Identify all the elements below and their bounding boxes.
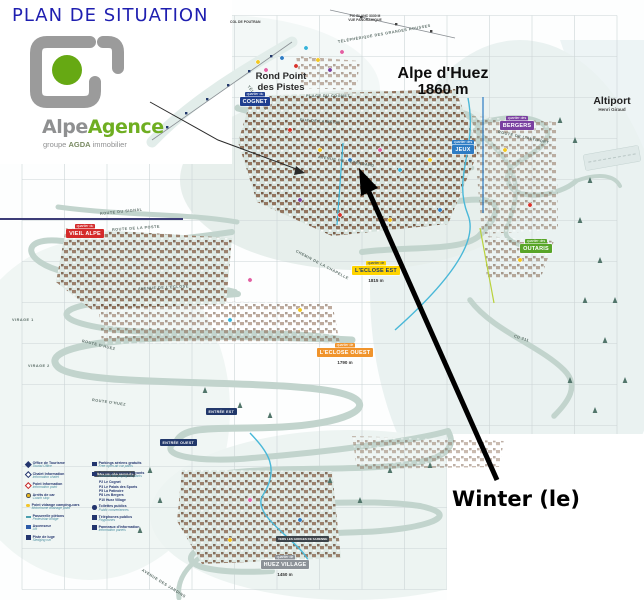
quartier-badge-eclose-ouest: quartier de L'ECLOSE OUEST 1790 m xyxy=(314,343,376,365)
quartier-badge-outaris: quartier des OUTARIS xyxy=(512,239,560,253)
tagline-pre: groupe xyxy=(43,140,66,149)
resort-name: Alpe d'Huez xyxy=(384,66,502,82)
legend-item: Ascenseur Lift xyxy=(26,524,88,532)
quartier-badge-vieil-alpe: quartier du VIEIL ALPE xyxy=(62,224,108,238)
badge-label: L'ECLOSE EST xyxy=(352,266,400,275)
altiport-label: Altiport Henri Giraud xyxy=(582,96,642,112)
wordmark-agence: Agence xyxy=(88,116,164,138)
parking-entry: P10 Huez Village xyxy=(99,499,172,503)
legend-text: Piste de luge Sledging run xyxy=(33,535,55,543)
agency-logo-mark xyxy=(20,30,180,120)
legend-text: Point vidange camping-cars Motorhome dra… xyxy=(32,503,80,511)
badge-tab: quartier des xyxy=(452,140,474,145)
resort-altitude: 1860 m xyxy=(384,82,502,99)
legend-item: Passerelle piétons Pedestrian bridge xyxy=(26,514,88,522)
quartier-badge-bergers: quartier des BERGERS xyxy=(494,116,540,130)
quartier-badge-jeux: quartier des JEUX xyxy=(442,140,484,154)
legend-icon xyxy=(26,493,31,498)
legend-item: Piste de luge Sledging run xyxy=(26,535,88,543)
entrance-badge-ouest: ENTRÉE OUEST xyxy=(160,439,197,446)
pic-blanc-line2: VUE PANORAMIQUE xyxy=(330,18,400,22)
badge-label: HUEZ VILLAGE xyxy=(261,560,310,569)
info-panel-icon xyxy=(92,525,97,530)
legend-label-en: Covered fee-paying car parks xyxy=(99,475,145,479)
legend-label-en: Free open-air car parks xyxy=(99,465,142,469)
legend-text: Chalet Information Information chalet xyxy=(33,472,65,480)
badge-tab: quartier de xyxy=(335,343,356,348)
legend-icon xyxy=(25,471,31,477)
legend-label-en: Public conveniences xyxy=(99,509,129,513)
entrance-badge-est: ENTRÉE EST xyxy=(206,408,237,415)
legend-item: Arrêts de car Coach stop xyxy=(26,493,88,501)
covered-parking-icon xyxy=(92,472,97,477)
legend-item: Toilettes publicsPublic conveniences xyxy=(92,504,172,512)
badge-tab: quartier du xyxy=(245,92,266,97)
badge-label: L'ECLOSE OUEST xyxy=(317,348,374,357)
legend-label-en: Information panels xyxy=(99,529,140,533)
altiport-sub: Henri Giraud xyxy=(582,107,642,112)
street-label: VIRAGE 1 xyxy=(12,318,34,322)
legend-icon xyxy=(25,482,31,488)
payphone-icon xyxy=(92,515,97,520)
pic-blanc-label: PIC BLANC 3330 M VUE PANORAMIQUE xyxy=(330,14,400,23)
badge-label: VIEIL ALPE xyxy=(66,229,104,238)
legend-text: Arrêts de car Coach stop xyxy=(33,493,55,501)
badge-label: BERGERS xyxy=(500,121,535,130)
quartier-badge-cognet: quartier du COGNET xyxy=(236,92,274,106)
legend-right-column: Parkings aériens gratuitsFree open-air c… xyxy=(92,461,172,542)
street-label: VIRAGE 2 xyxy=(28,364,50,368)
legend-label-en: Pedestrian bridge xyxy=(33,518,65,522)
badge-label: JEUX xyxy=(452,145,473,154)
altiport-name: Altiport xyxy=(582,96,642,107)
agency-logo: AlpeAgence groupe AGDA immobilier xyxy=(20,30,220,160)
badge-tab: quartier de xyxy=(366,261,387,266)
legend-label-en: Tourist Office xyxy=(33,465,65,469)
agency-tagline: groupe AGDA immobilier xyxy=(43,140,127,149)
legend-icon xyxy=(26,516,31,518)
legend-label-en: Information point xyxy=(33,486,63,490)
col-de-poutran-label: COL DE POUTRAN xyxy=(230,20,260,24)
legend-label-en: Motorhome drainage point xyxy=(32,507,80,511)
badge-altitude: 1450 m xyxy=(277,572,292,577)
badge-label: OUTARIS xyxy=(520,244,552,253)
page-title: PLAN DE SITUATION xyxy=(12,5,209,26)
badge-altitude: 1790 m xyxy=(337,360,352,365)
legend-icon xyxy=(26,525,31,530)
logo-green-circle xyxy=(52,55,82,85)
parking-list: P2 Le CognetP3 Le Palais des SportsP5 La… xyxy=(99,481,172,502)
legend-icon xyxy=(25,461,31,467)
legend-icon xyxy=(26,504,30,508)
badge-tab: quartier du xyxy=(75,224,96,229)
legend-text: Office de Tourisme Tourist Office xyxy=(33,461,65,469)
legend-item: Point vidange camping-cars Motorhome dra… xyxy=(26,503,88,511)
legend-item: Point Information Information point xyxy=(26,482,88,490)
legend-text: Passerelle piétons Pedestrian bridge xyxy=(33,514,65,522)
tagline-post: immobilier xyxy=(93,140,127,149)
legend-icon xyxy=(26,535,31,540)
legend-label-en: Coach stop xyxy=(33,497,55,501)
tagline-agda: AGDA xyxy=(68,140,90,149)
legend-item: Office de Tourisme Tourist Office xyxy=(26,461,88,469)
quartier-badge-eclose-est: quartier de L'ECLOSE EST 1815 m xyxy=(348,261,404,283)
legend-item: Panneaux d'informationInformation panels xyxy=(92,525,172,533)
badge-tab: quartier des xyxy=(506,116,528,121)
street-label: PLACE DU COGNET xyxy=(306,94,350,98)
wordmark-alpe: Alpe xyxy=(42,116,88,138)
agency-wordmark: AlpeAgence xyxy=(42,116,164,138)
legend-item: Parkings couverts payantsCovered fee-pay… xyxy=(92,471,172,479)
legend-label-en: Information chalet xyxy=(33,476,65,480)
legend-text: Ascenseur Lift xyxy=(33,524,51,532)
legend-item: Téléphones publicsPayphones xyxy=(92,515,172,523)
quartier-badge-huez-village: quartier de HUEZ VILLAGE 1450 m xyxy=(256,555,314,577)
map-legend: Office de Tourisme Tourist Office Chalet… xyxy=(26,461,176,542)
toilets-icon xyxy=(92,505,97,510)
legend-left-column: Office de Tourisme Tourist Office Chalet… xyxy=(26,461,88,542)
legend-label-en: Sledging run xyxy=(33,539,55,543)
resort-name-label: Alpe d'Huez 1860 m xyxy=(384,66,502,99)
legend-item: Chalet Information Information chalet xyxy=(26,472,88,480)
legend-item: Parkings aériens gratuitsFree open-air c… xyxy=(92,461,172,469)
legend-label-en: Lift xyxy=(33,528,51,532)
legend-text: Point Information Information point xyxy=(33,482,63,490)
free-parking-icon xyxy=(92,462,97,467)
property-name-label: Winter (le) xyxy=(446,487,586,511)
direction-sign-gorges-sarenne: VERS LES GORGES DE SARENNE xyxy=(276,536,329,542)
legend-label-en: Payphones xyxy=(99,519,133,523)
badge-label: COGNET xyxy=(240,97,271,106)
rond-point-des-pistes-label: Rond Point des Pistes xyxy=(238,72,324,94)
badge-tab: quartier des xyxy=(525,239,547,244)
badge-altitude: 1815 m xyxy=(368,278,383,283)
badge-tab: quartier de xyxy=(275,555,296,560)
plan-de-situation-page: ROUTE DU SIGNALROUTE DE LA POSTEAVENUE D… xyxy=(0,0,644,600)
